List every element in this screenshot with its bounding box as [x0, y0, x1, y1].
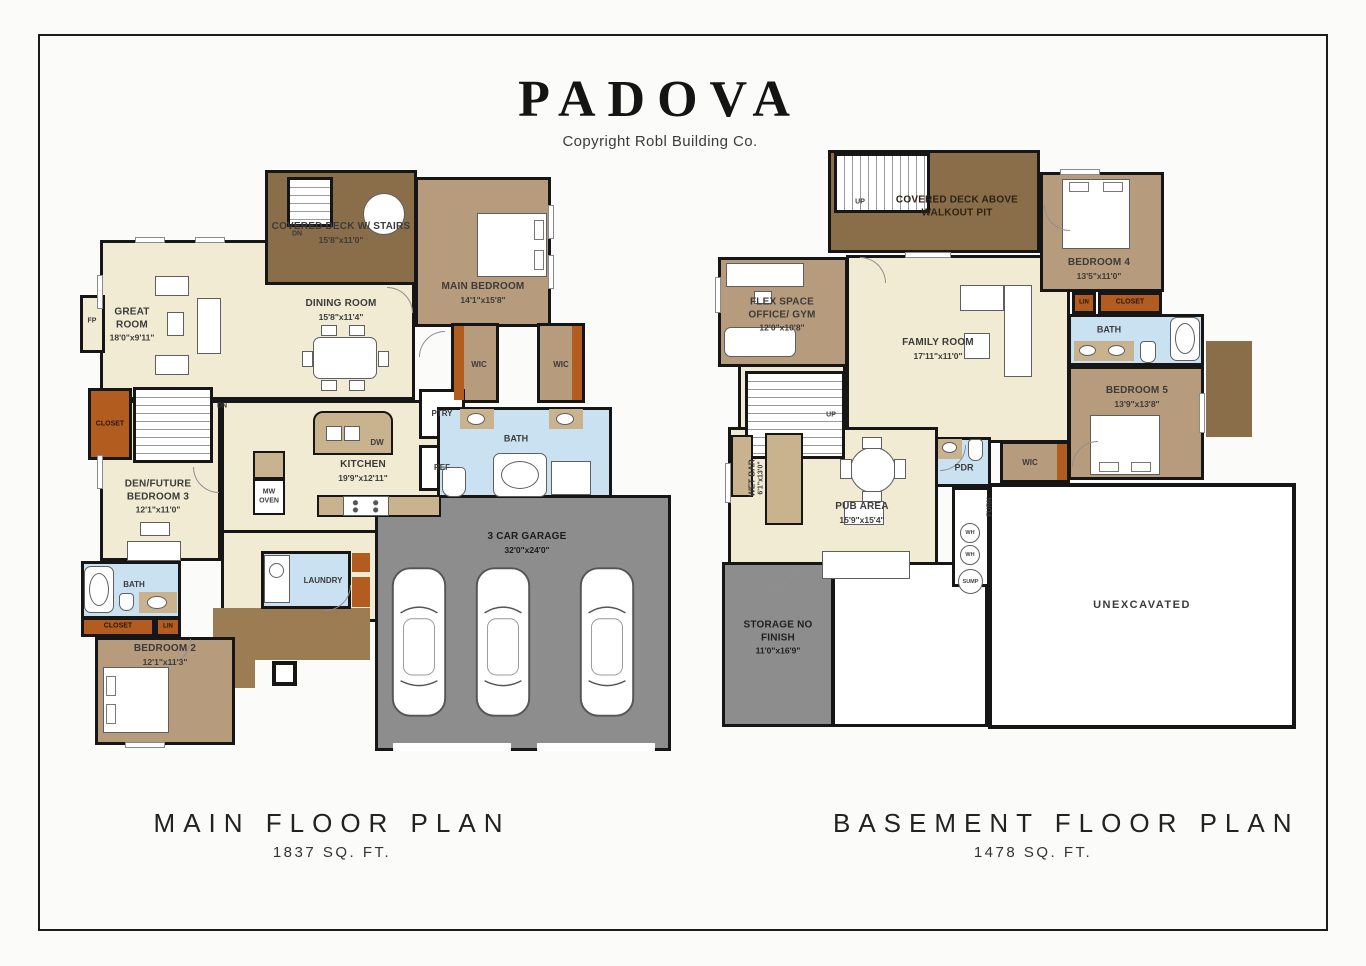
loveseat-bottom	[155, 355, 189, 375]
wic-2-shelf	[572, 326, 582, 400]
closet1-label: CLOSET	[96, 421, 124, 430]
pantry-label: PTRY	[431, 409, 452, 419]
family-label: FAMILY ROOM 17'11"x11'0"	[873, 337, 1003, 361]
desk	[726, 263, 804, 287]
sink-icon	[467, 413, 485, 425]
main-bedroom-door	[419, 331, 445, 357]
sofa	[822, 551, 910, 579]
toilet-icon	[1140, 341, 1156, 363]
page: PADOVA Copyright Robl Building Co.	[0, 0, 1366, 966]
pub-label: PUB AREA 15'9"x15'4"	[817, 501, 907, 525]
kitchen-sink-right	[344, 426, 360, 441]
deck-stairs	[287, 177, 333, 227]
main-bedroom-dims: 14'1"x15'8"	[428, 294, 538, 305]
deck-above-label: COVERED DECK ABOVE WALKOUT PIT	[882, 195, 1032, 220]
den-name: DEN/FUTURE BEDROOM 3	[118, 479, 198, 504]
wh-label: WH	[965, 552, 974, 558]
dining-table	[313, 337, 377, 379]
den-dims: 12'1"x11'0"	[118, 505, 198, 516]
den-label: DEN/FUTURE BEDROOM 3 12'1"x11'0"	[118, 479, 198, 516]
great-room-name: GREAT ROOM	[106, 307, 158, 332]
window	[548, 205, 554, 239]
kitchen-dims: 19'9"x12'11"	[318, 472, 408, 483]
window	[195, 237, 225, 243]
basement-sqft: 1478 SQ. FT.	[833, 844, 1233, 861]
laundry-closet-a	[352, 553, 370, 572]
bedroom2-name: BEDROOM 2	[118, 643, 213, 656]
kitchen-sink-left	[326, 426, 342, 441]
wetbar-label: WET BAR 6'1"x13'0"	[748, 459, 767, 496]
sump-label: SUMP	[963, 579, 979, 585]
window	[125, 742, 165, 748]
loveseat-top	[155, 276, 189, 296]
deck-patch	[1206, 341, 1252, 437]
shower	[551, 461, 591, 495]
garage-name: 3 CAR GARAGE	[472, 531, 582, 544]
wetbar-island	[765, 433, 803, 525]
great-room-label: GREAT ROOM 18'0"x9'11"	[106, 307, 158, 344]
unexcavated-label: UNEXCAVATED	[1093, 599, 1191, 613]
pub-dims: 15'9"x15'4"	[817, 514, 907, 525]
garage-dims: 32'0"x24'0"	[472, 544, 582, 555]
covered-deck-name: COVERED DECK W/ STAIRS	[266, 221, 416, 234]
closet-basement-label: CLOSET	[1116, 299, 1144, 308]
wic1-label: WIC	[471, 360, 487, 370]
window	[1060, 169, 1100, 175]
car-icon	[575, 563, 639, 726]
main-bed	[477, 213, 547, 277]
washer-door	[269, 563, 284, 578]
pillow	[106, 676, 116, 696]
window	[715, 277, 721, 313]
pillow	[1103, 182, 1123, 192]
main-bedroom-name: MAIN BEDROOM	[428, 281, 538, 294]
chair	[321, 325, 337, 336]
wetbar-name: WET BAR	[748, 459, 758, 496]
main-floor-sqft: 1837 SQ. FT.	[132, 844, 532, 861]
furnace-label: FURN	[987, 497, 996, 516]
wic-1-shelf	[454, 326, 464, 400]
sink-icon	[147, 596, 167, 609]
powder-label: PDR	[954, 462, 973, 473]
pillow	[534, 220, 544, 240]
sink-icon	[1079, 345, 1096, 356]
family-name: FAMILY ROOM	[873, 337, 1003, 350]
pillow	[106, 704, 116, 724]
bedroom4-dims: 13'5"x11'0"	[1052, 270, 1147, 281]
wic-basement-label: WIC	[1022, 458, 1038, 468]
chair	[862, 437, 882, 449]
loveseat	[127, 541, 181, 561]
bedroom5-label: BEDROOM 5 13'9"x13'8"	[1090, 385, 1185, 409]
mw-oven-label: MW OVEN	[255, 488, 283, 506]
chair	[378, 351, 389, 367]
basement-title: BASEMENT FLOOR PLAN	[833, 808, 1233, 839]
chair	[302, 351, 313, 367]
plan-title: PADOVA	[310, 70, 1010, 129]
bedroom2-label: BEDROOM 2 12'1"x11'3"	[118, 643, 213, 667]
dn2-label: DN	[217, 403, 227, 412]
linen-label: LIN	[163, 623, 173, 631]
dn-label: DN	[292, 231, 302, 240]
stove-icon	[343, 496, 389, 516]
chair	[349, 325, 365, 336]
front-porch	[213, 608, 370, 660]
bedroom4-label: BEDROOM 4 13'5"x11'0"	[1052, 257, 1147, 281]
deck-above-name: COVERED DECK ABOVE WALKOUT PIT	[882, 195, 1032, 220]
chair	[894, 459, 906, 479]
flex-dims: 12'0"x10'8"	[738, 323, 826, 334]
window	[97, 455, 103, 489]
great-room-dims: 18'0"x9'11"	[106, 333, 158, 344]
fp-label: FP	[88, 318, 97, 327]
sofa-side	[197, 298, 221, 354]
wic2-label: WIC	[553, 360, 569, 370]
tub-basin	[1175, 323, 1195, 354]
mw-counter	[253, 451, 285, 479]
toilet-icon	[119, 593, 134, 611]
tub-basin	[89, 573, 109, 606]
pub-table	[850, 447, 896, 493]
storage-label: STORAGE NO FINISH 11'0"x16'9"	[743, 620, 813, 657]
family-dims: 17'11"x11'0"	[873, 350, 1003, 361]
sectional-sofa-side	[1004, 285, 1032, 377]
window	[548, 255, 554, 289]
main-bath-label: BATH	[504, 433, 528, 444]
wic-basement-shelf	[1057, 444, 1067, 480]
main-bedroom-label: MAIN BEDROOM 14'1"x15'8"	[428, 281, 538, 305]
laundry-label: LAUNDRY	[304, 576, 343, 586]
toilet-icon	[968, 439, 983, 461]
window	[1199, 393, 1205, 433]
window	[725, 463, 731, 503]
covered-deck-dims: 15'8"x11'0"	[266, 234, 416, 245]
sump-pump-icon: SUMP	[958, 569, 983, 594]
water-heater-icon: WH	[960, 523, 980, 543]
basement-floor-plan: WH WH SUMP COVERED DECK ABOVE WALKOUT PI…	[710, 145, 1305, 735]
laundry-closet-b	[352, 577, 370, 607]
covered-deck-label: COVERED DECK W/ STAIRS 15'8"x11'0"	[266, 221, 416, 245]
kitchen-label: KITCHEN 19'9"x12'11"	[318, 459, 408, 483]
basement-bath-label: BATH	[1097, 324, 1121, 335]
bed	[1062, 179, 1130, 249]
dining-room-name: DINING ROOM	[291, 298, 391, 311]
flex-name: FLEX SPACE OFFICE/ GYM	[738, 297, 826, 322]
bedroom5-name: BEDROOM 5	[1090, 385, 1185, 398]
bedroom2-dims: 12'1"x11'3"	[118, 656, 213, 667]
flex-label: FLEX SPACE OFFICE/ GYM 12'0"x10'8"	[738, 297, 826, 334]
kitchen-name: KITCHEN	[318, 459, 408, 472]
sectional-sofa-top	[960, 285, 1004, 311]
fridge-label: REF	[434, 463, 450, 473]
dw-label: DW	[370, 438, 383, 448]
chair	[349, 380, 365, 391]
chair	[840, 459, 852, 479]
garage-door-2	[537, 743, 655, 751]
pillow	[534, 250, 544, 270]
chair	[321, 380, 337, 391]
window	[97, 275, 103, 309]
bedroom5-dims: 13'9"x13'8"	[1090, 398, 1185, 409]
bed	[103, 667, 169, 733]
garage-label: 3 CAR GARAGE 32'0"x24'0"	[472, 531, 582, 555]
pillow	[1069, 182, 1089, 192]
car-icon	[387, 563, 451, 726]
pub-name: PUB AREA	[817, 501, 907, 514]
up-label: UP	[855, 199, 865, 208]
water-heater-icon: WH	[960, 545, 980, 565]
lin-basement-label: LIN	[1079, 299, 1089, 307]
bed	[1090, 415, 1160, 475]
window	[905, 252, 951, 258]
dining-room-label: DINING ROOM 15'8"x11'4"	[291, 298, 391, 322]
sink-icon	[1108, 345, 1125, 356]
wh-label: WH	[965, 530, 974, 536]
pillow	[1099, 462, 1119, 472]
tub-basin	[501, 461, 539, 489]
main-floor-title: MAIN FLOOR PLAN	[132, 808, 532, 839]
main-stairs	[133, 387, 213, 463]
bath2-label: BATH	[123, 580, 145, 590]
up2-label: UP	[826, 412, 836, 421]
dining-room-dims: 15'8"x11'4"	[291, 311, 391, 322]
garage-door-1	[393, 743, 511, 751]
wetbar-dims: 6'1"x13'0"	[758, 459, 767, 496]
car-icon	[471, 563, 535, 726]
pillow	[1131, 462, 1151, 472]
bedroom4-name: BEDROOM 4	[1052, 257, 1147, 270]
porch-pillar	[272, 661, 297, 686]
window	[135, 237, 165, 243]
sink-icon	[556, 413, 574, 425]
coffee-table	[167, 312, 184, 336]
main-floor-plan: COVERED DECK W/ STAIRS 15'8"x11'0" DN MA…	[75, 155, 680, 765]
ottoman	[140, 522, 170, 536]
storage-name: STORAGE NO FINISH	[743, 620, 813, 645]
closet2-label: CLOSET	[104, 623, 132, 632]
storage-dims: 11'0"x16'9"	[743, 646, 813, 657]
